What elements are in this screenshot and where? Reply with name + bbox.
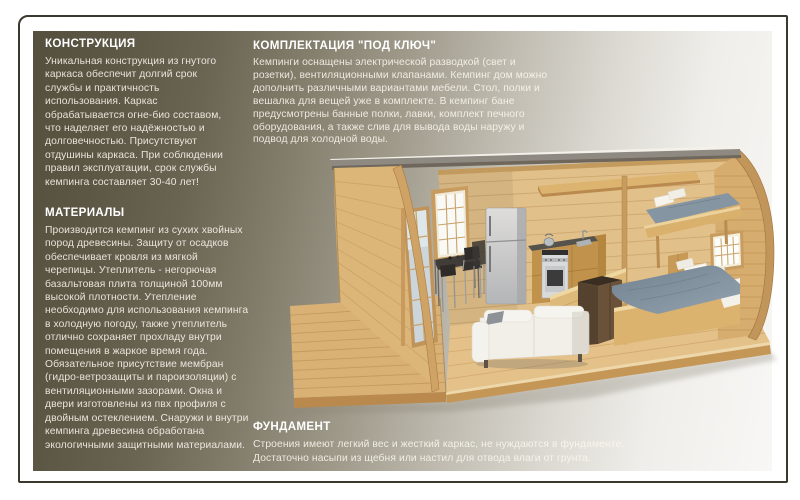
fridge <box>486 208 526 304</box>
house-render-illustration <box>288 146 784 438</box>
stove <box>542 250 568 298</box>
section-foundation: ФУНДАМЕНТ Строения имеют легкий вес и же… <box>253 420 798 465</box>
section-materials: МАТЕРИАЛЫ Производится кемпинг из сухих … <box>45 206 260 452</box>
foundation-body: Строения имеют легкий вес и жесткий карк… <box>253 438 798 465</box>
materials-body: Производится кемпинг из сухих хвойных по… <box>45 224 260 452</box>
turnkey-title: КОМПЛЕКТАЦИЯ "ПОД КЛЮЧ" <box>253 39 588 52</box>
interior-window <box>431 186 470 262</box>
section-construction: КОНСТРУКЦИЯ Уникальная конструкция из гн… <box>45 37 260 189</box>
construction-body: Уникальная конструкция из гнутого каркас… <box>45 55 260 189</box>
turnkey-body: Кемпинги оснащены электрической разводко… <box>253 57 588 147</box>
foundation-title: ФУНДАМЕНТ <box>253 420 798 433</box>
section-turnkey: КОМПЛЕКТАЦИЯ "ПОД КЛЮЧ" Кемпинги оснащен… <box>253 39 588 147</box>
construction-title: КОНСТРУКЦИЯ <box>45 37 260 50</box>
materials-title: МАТЕРИАЛЫ <box>45 206 260 219</box>
